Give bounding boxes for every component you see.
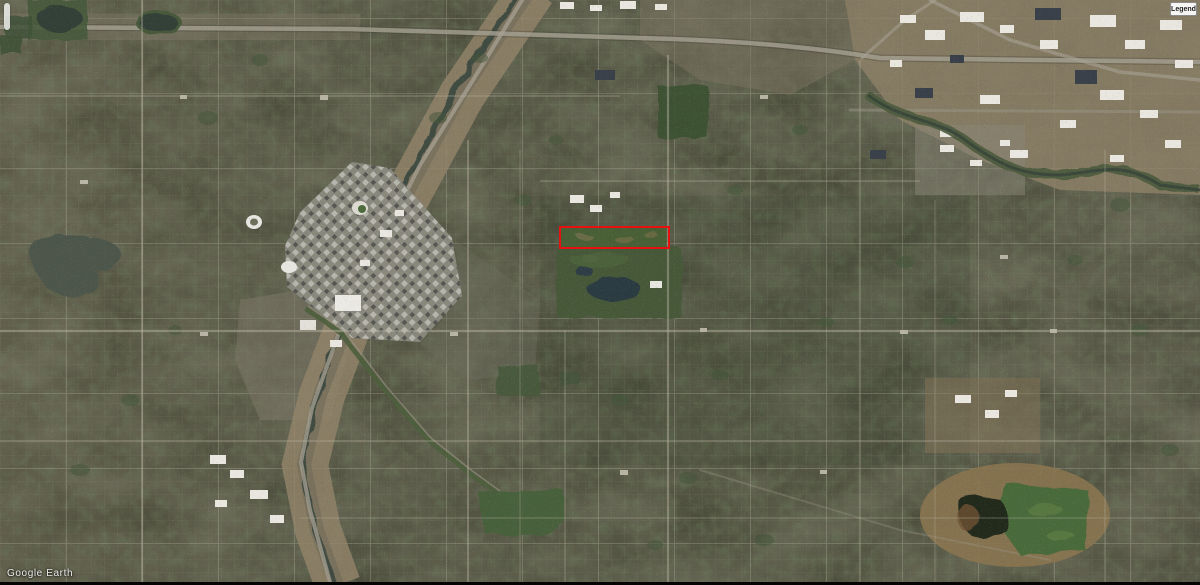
satellite-map[interactable] bbox=[0, 0, 1200, 582]
legend-panel[interactable]: Legend bbox=[1170, 2, 1197, 16]
nav-control-fragment[interactable] bbox=[4, 3, 10, 30]
google-earth-viewport: Google Earth Legend bbox=[0, 0, 1200, 585]
imagery-grain bbox=[0, 0, 1200, 582]
legend-label: Legend bbox=[1171, 6, 1196, 13]
google-earth-watermark: Google Earth bbox=[7, 568, 73, 579]
area-highlight[interactable] bbox=[559, 226, 670, 249]
